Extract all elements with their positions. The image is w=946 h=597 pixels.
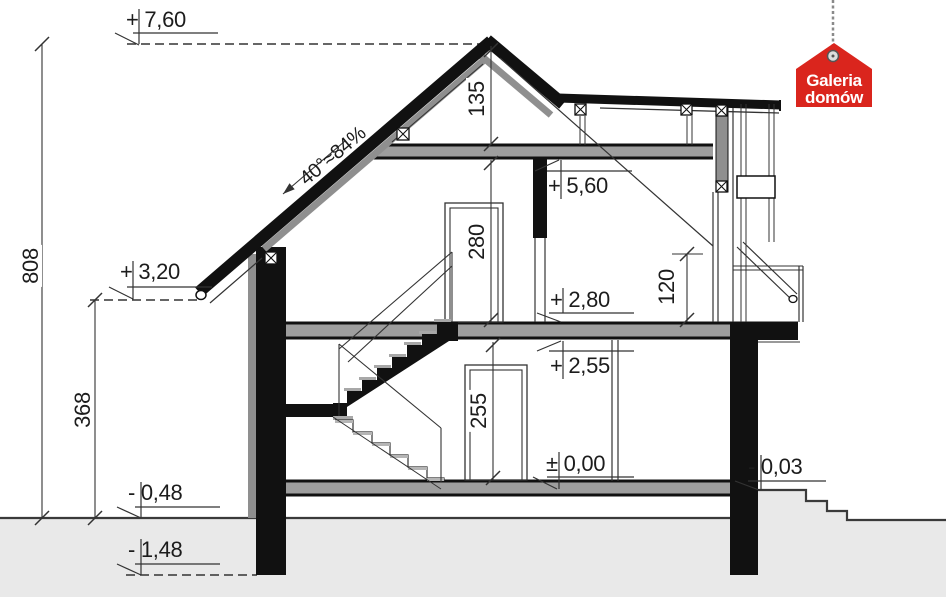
staircase	[284, 252, 458, 489]
dim-label-railing: 120	[656, 266, 678, 308]
level-label-2-80: + 2,80	[550, 289, 610, 311]
dim-label-ridge-height: 135	[466, 78, 488, 120]
attic-ceiling-slab	[371, 145, 713, 158]
dim-label-lower-height: 368	[72, 389, 94, 431]
level-label-7-60: + 7,60	[126, 9, 186, 31]
level-label-minus-0-48: - 0,48	[128, 482, 182, 504]
ground-floor-slab	[286, 481, 730, 495]
level-label-minus-1-48: - 1,48	[128, 539, 182, 561]
logo-text-line2: domów	[796, 89, 872, 106]
purlin-marks	[265, 104, 727, 264]
level-label-minus-0-03: - 0,03	[748, 456, 802, 478]
level-label-3-20: + 3,20	[120, 261, 180, 283]
level-label-2-55: + 2,55	[550, 355, 610, 377]
cross-section-drawing: + 7,60 + 3,20 - 0,48 - 1,48 + 5,60 + 2,8…	[0, 0, 946, 597]
right-wing-elevation	[733, 104, 803, 322]
gutter-left	[196, 291, 206, 300]
logo-text-line1: Galeria	[796, 72, 872, 89]
interior-partitions	[445, 158, 618, 481]
dim-label-total-height: 808	[20, 245, 42, 287]
gutter-right	[789, 296, 797, 303]
level-label-5-60: + 5,60	[548, 175, 608, 197]
dim-label-upper-room: 280	[466, 221, 488, 263]
dim-label-ground-room: 255	[468, 390, 490, 432]
upper-floor-slab	[286, 322, 800, 342]
level-label-0-00: ± 0,00	[546, 453, 605, 475]
